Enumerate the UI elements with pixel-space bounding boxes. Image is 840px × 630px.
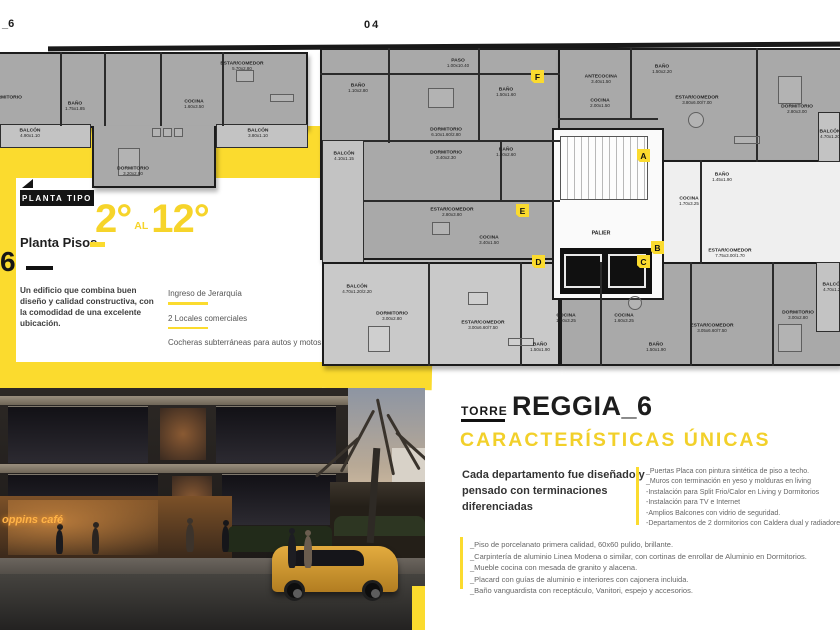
building-render-photo: oppins café [0, 388, 425, 630]
feature-bullet-item: -Departamentos de 2 dormitorios con Cald… [646, 520, 840, 528]
room-label: DORMITORIO 3.40x2.30 [430, 150, 462, 160]
room-label: BAÑO 1.75x1.85 [65, 101, 85, 111]
room-label: BAÑO 1.50x1.90 [646, 342, 666, 352]
room-label: ESTAR/COMEDOR 3.80x6.00/7.00 [675, 95, 718, 105]
room-label: BALCÓN 4.70x1.20 [823, 282, 840, 292]
plan-balcony [818, 112, 840, 162]
plan-feature-item: Cocheras subterráneas para autos y motos [168, 338, 328, 347]
room-label: PASO 1.00x10.40 [447, 58, 469, 68]
plan-unit-bottom-center [322, 262, 560, 366]
feature-bullet-item: _Baño vanguardista con receptáculo, Vani… [470, 586, 840, 596]
torre-name: REGGIA_6 [512, 391, 653, 422]
room-label: BAÑO 1.50x1.90 [530, 342, 550, 352]
torre-kicker: TORRE [461, 404, 508, 418]
feature-bullet-item: -Instalación para TV e Internet [646, 499, 840, 507]
torre-headline: CARACTERÍSTICAS ÚNICAS [460, 429, 771, 452]
torre-intro: Cada departamento fue diseñado y pensado… [462, 468, 652, 516]
feature-bullet-item: -Amplios Balcones con vidrio de segurida… [646, 510, 840, 518]
plan-balcony [816, 262, 840, 332]
yellow-dash [90, 242, 105, 247]
person [304, 536, 312, 568]
room-label: ANTECOCINA 3.40x1.50 [585, 74, 618, 84]
room-label: DORMITORIO 3.00x2.80 [782, 310, 814, 320]
planta-tipo-tag: PLANTA TIPO [20, 190, 94, 206]
plants [334, 516, 425, 536]
page-number: 04 [364, 19, 380, 31]
unit-marker: E [516, 204, 529, 217]
feature-bullet-item: -Instalación para Split Frio/Calor en Li… [646, 489, 840, 497]
stairs [560, 136, 648, 200]
plan-top-wall [48, 42, 840, 52]
brochure-page: _6 04 PLANTA TIPO Planta Pisos 2° AL 12°… [0, 0, 840, 630]
page-code-top-left: _6 [2, 18, 14, 30]
plan-unit-bottom-right [560, 262, 840, 366]
feature-bullet-item: _Carpintería de aluminio Linea Modena o … [470, 552, 840, 562]
plan-unit-center [320, 48, 560, 260]
room-label: BAÑO 1.45x1.90 [712, 172, 732, 182]
torre-kicker-underline [461, 419, 505, 422]
room-label: DORMITORIO [0, 95, 22, 100]
room-label: BAÑO 1.50x1.60 [496, 87, 516, 97]
elevators [560, 248, 652, 294]
yellow-edge-strip [412, 586, 425, 630]
person [288, 534, 296, 568]
feature-bullet-item: _Piso de porcelanato primera calidad, 60… [470, 540, 840, 550]
person [56, 530, 63, 554]
yellow-bottom-band [316, 354, 433, 390]
person [92, 528, 99, 554]
plan-feature-list: Ingreso de Jerarquía2 Locales comerciale… [168, 289, 328, 356]
room-label: DORMITORIO 3.00x2.80 [376, 311, 408, 321]
room-label: COCINA 1.60x3.25 [556, 313, 576, 323]
plan-unit-left [0, 52, 308, 128]
plan-unit-top-right [558, 48, 840, 162]
room-label: BALCÓN 4.10x1.15 [334, 151, 355, 161]
room-label: BAÑO 1.50x2.60 [496, 147, 516, 157]
unit-marker: A [637, 149, 650, 162]
unit-marker: F [531, 70, 544, 83]
room-label: COCINA 2.00x1.50 [590, 98, 610, 108]
room-label: BAÑO 1.50x2.20 [652, 64, 672, 74]
features-bottom-list: _Piso de porcelanato primera calidad, 60… [470, 540, 840, 598]
feature-bullet-item: _Mueble cocina con mesada de granito y a… [470, 563, 840, 573]
floor-from: 2° [95, 199, 131, 239]
plan-unit-right-middle [660, 160, 840, 264]
floor-al: AL [134, 220, 148, 232]
person [222, 526, 229, 552]
floor-to: 12° [151, 199, 209, 239]
room-label: BAÑO 1.10x2.80 [348, 83, 368, 93]
floors-label: Planta Pisos [20, 235, 97, 250]
room-label: DORMITORIO 2.80x3.00 [781, 104, 813, 114]
unit-marker: D [532, 255, 545, 268]
person [186, 524, 194, 552]
side-number-dash [26, 266, 53, 270]
cafe-sign: oppins café [2, 514, 63, 526]
room-label: BALCÓN 4.70x1.20/2.20 [342, 284, 372, 294]
room-label: ESTAR/COMEDOR 7.75x3.00/1.70 [708, 248, 751, 258]
plan-feature-item: Ingreso de Jerarquía [168, 289, 328, 305]
room-label: ESTAR/COMEDOR 2.80x3.80 [430, 207, 473, 217]
side-number: 6 [0, 246, 16, 278]
room-label: COCINA 3.40x1.50 [479, 235, 499, 245]
plan-feature-item: 2 Locales comerciales [168, 314, 328, 330]
plan-balcony [322, 140, 364, 298]
floors-range: 2° AL 12° [95, 199, 209, 239]
features-right-list: _Puertas Placa con pintura sintética de … [646, 468, 840, 530]
list-accent-bar [460, 537, 463, 589]
room-label: ESTAR/COMEDOR 3.00x6.60/7.50 [461, 320, 504, 330]
feature-bullet-item: _Puertas Placa con pintura sintética de … [646, 468, 840, 476]
list-accent-bar [636, 467, 639, 525]
unit-marker: C [637, 255, 650, 268]
plan-core [552, 128, 664, 300]
room-label: ESTAR/COMEDOR 5.70x2.80 [220, 61, 263, 71]
palier-label: PALIER [592, 231, 611, 236]
room-label: COCINA 1.60x3.50 [184, 99, 204, 109]
feature-bullet-item: _Muros con terminación en yeso y moldura… [646, 478, 840, 486]
unit-marker: B [651, 241, 664, 254]
room-label: COCINA 1.70x3.25 [679, 196, 699, 206]
building-description: Un edificio que combina buen diseño y ca… [20, 285, 158, 329]
room-label: DORMITORIO 6.10x1.60/2.80 [430, 127, 462, 137]
room-label: COCINA 1.60x3.25 [614, 313, 634, 323]
feature-bullet-item: _Placard con guías de aluminio e interio… [470, 575, 840, 585]
room-label: BALCÓN 4.70x1.20 [820, 129, 840, 139]
room-label: ESTAR/COMEDOR 3.05x6.60/7.50 [690, 323, 733, 333]
